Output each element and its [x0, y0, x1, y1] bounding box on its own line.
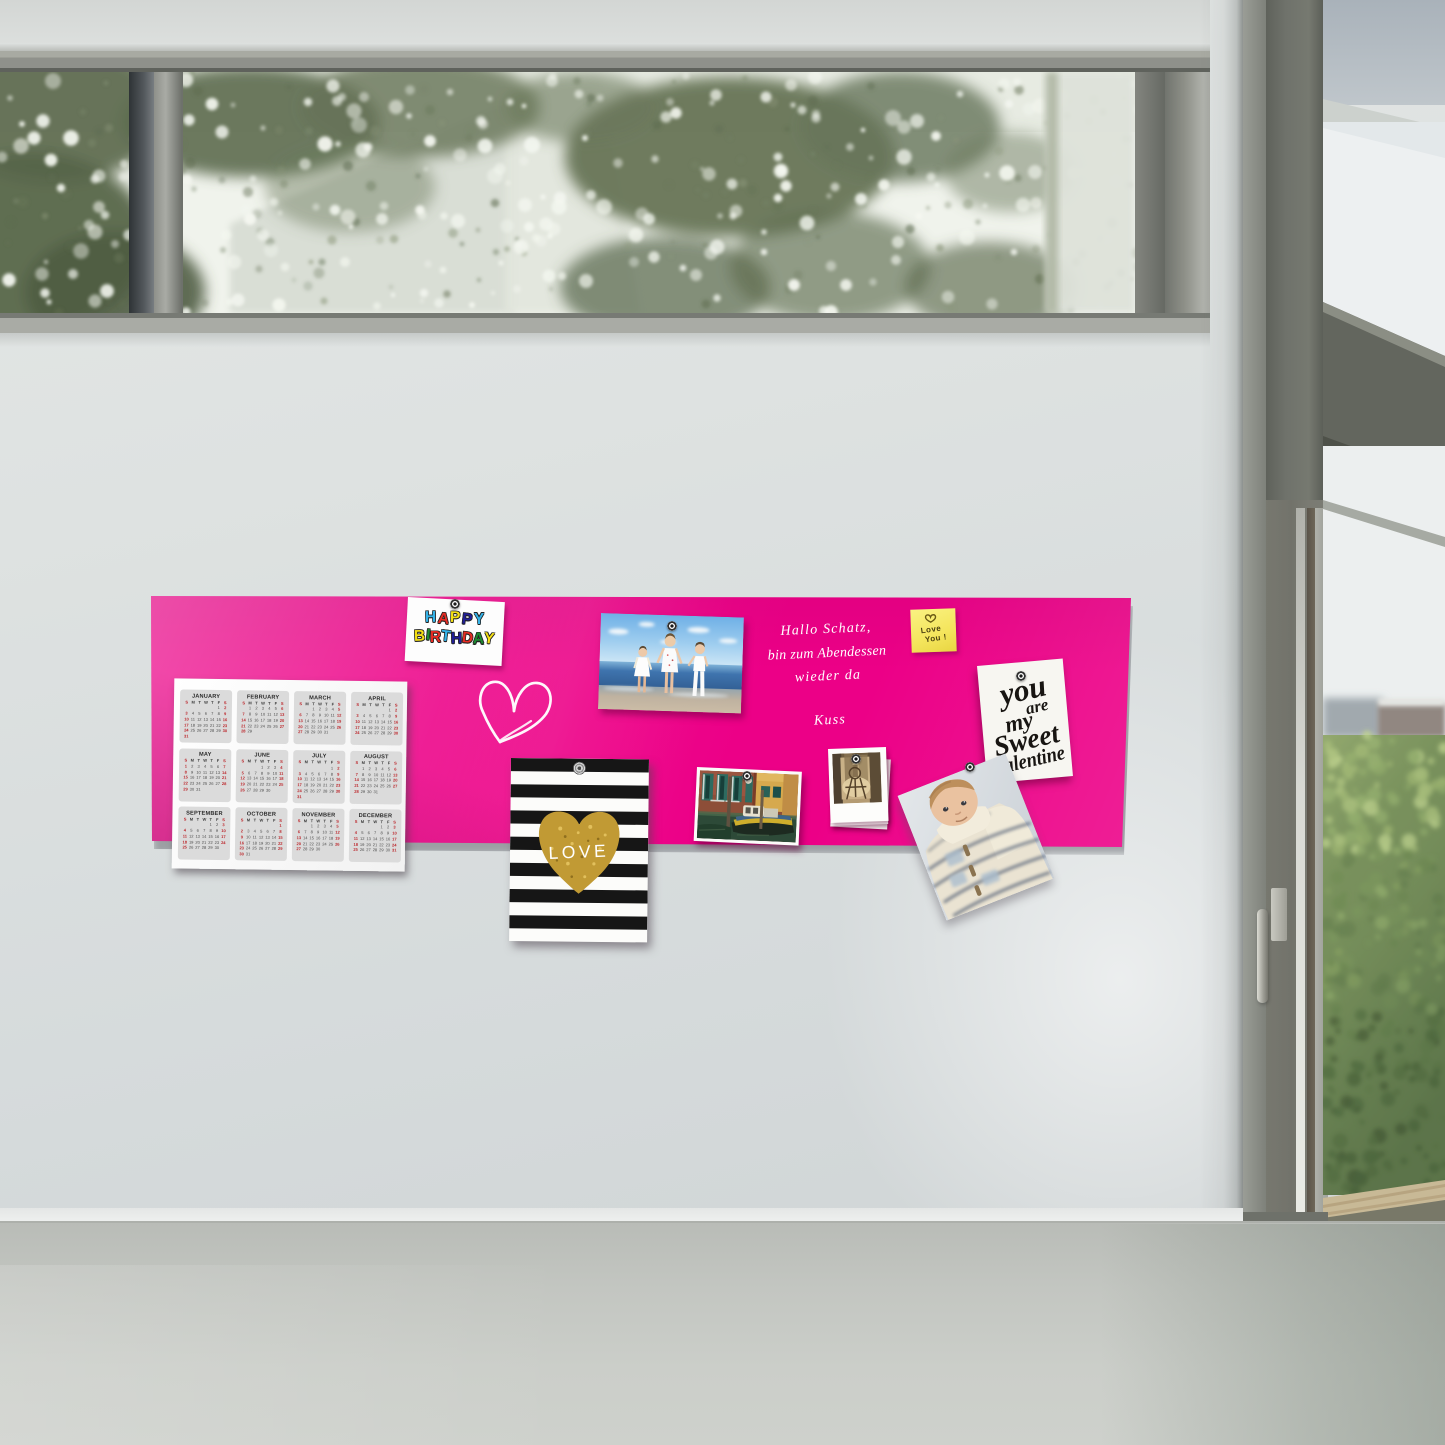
svg-text:You !: You !	[924, 632, 947, 644]
svg-text:LOVE: LOVE	[548, 840, 609, 863]
